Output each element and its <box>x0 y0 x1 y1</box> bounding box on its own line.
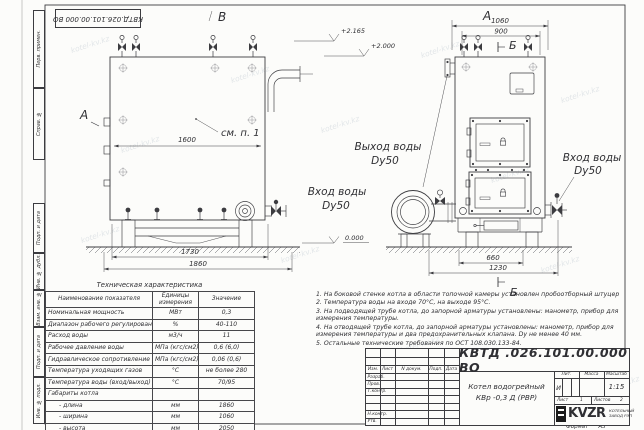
document-designation: КВТД .026.101.00.000 ВО <box>459 349 629 371</box>
elevation-0000: 0.000 <box>345 234 364 242</box>
safety-valves-top <box>118 35 257 57</box>
table-row: Рабочее давление водыМПа (кгс/см2)0,6 (6… <box>46 342 255 354</box>
outlet-label-line2: Dy50 <box>371 155 399 167</box>
param-unit: мм <box>153 412 199 424</box>
kvzr-logo-subtext: КОТЕЛЬНЫЙ ЗАВОД РЭП <box>609 408 634 418</box>
scale-value: 1:15 <box>604 383 629 391</box>
ash-door <box>466 172 531 214</box>
table-row: Температура воды (вход/выход)°С70/95 <box>46 377 255 389</box>
support-frame <box>122 220 252 247</box>
burner-flange <box>236 202 255 221</box>
param-unit: МПа (кгс/см2) <box>153 342 199 354</box>
sheet-value: 1 <box>580 398 583 403</box>
param-name: - высота <box>46 423 153 430</box>
param-value: 1860 <box>199 400 255 412</box>
margin-box-inv-podl: Инв. № подл. <box>33 377 45 424</box>
col-data: Дата <box>444 367 459 372</box>
param-value: 1060 <box>199 412 255 424</box>
param-unit: мм <box>153 400 199 412</box>
product-name: Котел водогрейный КВр -0,3 Д (РВР) <box>459 371 554 404</box>
svg-text:см. п. 1: см. п. 1 <box>221 128 260 139</box>
row-utv: Утв. <box>368 419 377 424</box>
param-value: 2050 <box>199 423 255 430</box>
row-nkontr: Н.контр. <box>368 412 388 417</box>
elevation-2165: +2.165 <box>341 27 365 35</box>
product-name-line1: Котел водогрейный <box>459 382 554 393</box>
drawing-sheet: kotel-kv.kz kotel-kv.kz kotel-kv.kz kote… <box>0 0 644 430</box>
param-name: Номинальная мощность <box>46 308 153 320</box>
row-tkontr: Т.контр. <box>368 389 387 394</box>
inlet-mid-label-line1: Вход воды <box>308 186 367 198</box>
furnace-door <box>467 118 530 167</box>
margin-box-podp-data-2: Подп. и дата <box>33 327 45 377</box>
margin-label: Взам. инв. № <box>36 291 42 326</box>
margin-box-perv-primen: Перв. примен. <box>33 10 45 88</box>
lit-value: И <box>554 384 563 392</box>
col-header: Единицы измерения <box>153 292 199 308</box>
margin-label: Подп. и дата <box>36 335 42 369</box>
row-prov: Пров. <box>368 382 381 387</box>
dim-1860: 1860 <box>189 260 207 268</box>
param-name: Диапазон рабочего регулирования <box>46 319 153 331</box>
table-row: Расход водым3/ч11 <box>46 331 255 343</box>
param-name: Температура воды (вход/выход) <box>46 377 153 389</box>
note-3: 3. На подводящей трубе котла, до запорно… <box>316 308 626 323</box>
param-value <box>199 389 255 401</box>
dim-660: 660 <box>486 254 500 262</box>
param-unit: м3/ч <box>153 331 199 343</box>
elevation-2000: +2.000 <box>371 42 395 50</box>
boiler-side-view <box>86 35 313 253</box>
duct-valve <box>435 190 445 205</box>
margin-label: Подп. и дата <box>36 211 42 245</box>
sheet-label: Лист <box>557 398 568 403</box>
title-block: КВТД .026.101.00.000 ВО Котел водогрейны… <box>365 348 630 426</box>
param-name: - длина <box>46 400 153 412</box>
sheets-value: 2 <box>620 398 623 403</box>
lit-header: Лит. <box>554 372 579 377</box>
dim-900: 900 <box>494 28 508 36</box>
drain-valves <box>125 208 227 220</box>
doc-number-top: КВТД.026.101.00.000 ВО <box>53 15 143 23</box>
outlet-label-line1: Выход воды <box>355 141 422 153</box>
note-4: 4. На отводящей трубе котла, до запорной… <box>316 324 626 339</box>
param-value: 0,3 <box>199 308 255 320</box>
table-row: - ширинамм1060 <box>46 412 255 424</box>
col-izm: Изм. <box>366 367 380 372</box>
param-name: Рабочее давление воды <box>46 342 153 354</box>
section-arrow-a: А <box>79 108 88 122</box>
param-name: Расход воды <box>46 331 153 343</box>
kvzr-logo-text: KVZR <box>568 406 606 421</box>
table-row: Температура уходящих газов°Сне более 280 <box>46 365 255 377</box>
param-value: 0,06 (0,6) <box>199 354 255 366</box>
technical-notes: 1. На боковой стенке котла в области топ… <box>316 291 626 348</box>
param-value: 11 <box>199 331 255 343</box>
tech-table: Наименование показателя Единицы измерени… <box>45 291 255 430</box>
side-outlet-valve <box>265 200 286 217</box>
param-name: Гидравлическое сопротивление котла <box>46 354 153 366</box>
param-name: Температура уходящих газов <box>46 365 153 377</box>
kvzr-sub-line2: ЗАВОД РЭП <box>609 413 634 418</box>
row-razrab: Разраб. <box>368 375 385 380</box>
right-view-dimensions: 1060 900 660 1230 <box>429 17 558 276</box>
table-row: - длинамм1860 <box>46 400 255 412</box>
param-unit: мм <box>153 423 199 430</box>
margin-box-inv-dubl: Инв. № дубл. <box>33 253 45 290</box>
dim-1600: 1600 <box>178 136 196 144</box>
col-ndokum: N докум. <box>395 367 428 372</box>
param-unit: % <box>153 319 199 331</box>
svg-text:Б: Б <box>509 39 517 52</box>
table-row: - высотамм2050 <box>46 423 255 430</box>
dim-1730: 1730 <box>181 248 199 256</box>
dim-1060: 1060 <box>491 17 509 25</box>
view-letter-v: В <box>218 10 226 24</box>
col-list: Лист <box>380 367 395 372</box>
param-unit: МВт <box>153 308 199 320</box>
col-podp: Подп. <box>428 367 444 372</box>
table-header-row: Наименование показателя Единицы измерени… <box>46 292 255 308</box>
outlet-flange <box>445 59 455 77</box>
chimney-elbow <box>268 66 313 112</box>
param-name: Габариты котла <box>46 389 153 401</box>
table-row: Номинальная мощностьМВт0,3 <box>46 308 255 320</box>
tech-table-title: Техническая характеристика <box>45 281 254 289</box>
param-value: 40-110 <box>199 319 255 331</box>
param-value: 70/95 <box>199 377 255 389</box>
margin-label: Инв. № подл. <box>36 383 42 418</box>
inlet-valve <box>545 193 567 218</box>
product-name-line2: КВр -0,3 Д (РВР) <box>459 393 554 404</box>
param-unit <box>153 389 199 401</box>
margin-box-podp-data-1: Подп. и дата <box>33 203 45 253</box>
param-value: 0,6 (6,0) <box>199 342 255 354</box>
top-hatch <box>510 73 534 94</box>
kvzr-logo-mark <box>556 406 566 422</box>
param-unit: МПа (кгс/см2) <box>153 354 199 366</box>
margin-label: Инв. № дубл. <box>36 254 42 289</box>
col-header: Значение <box>199 292 255 308</box>
callout-see-p1: см. п. 1 <box>195 118 260 139</box>
note-2: 2. Температура воды на входе 70°С, на вы… <box>316 299 626 306</box>
margin-box-sprav: Справ. № <box>33 88 45 160</box>
table-row: Габариты котла <box>46 389 255 401</box>
massa-header: Масса <box>579 372 604 377</box>
table-row: Диапазон рабочего регулирования%40-110 <box>46 319 255 331</box>
doc-number-top-box: КВТД.026.101.00.000 ВО <box>55 9 141 28</box>
inlet-mid-label-line2: Dy50 <box>322 200 350 212</box>
param-unit: °С <box>153 365 199 377</box>
section-b-top: Б <box>498 39 517 52</box>
note-1: 1. На боковой стенке котла в области топ… <box>316 291 626 298</box>
fan-base <box>398 234 431 247</box>
ash-drawer <box>474 221 518 230</box>
margin-label: Перв. примен. <box>36 30 42 68</box>
dim-1230: 1230 <box>489 264 507 272</box>
param-unit: °С <box>153 377 199 389</box>
sheets-label: Листов <box>594 398 610 403</box>
side-fittings <box>104 118 110 186</box>
param-name: - ширина <box>46 412 153 424</box>
margin-box-vzam-inv: Взам. инв. № <box>33 290 45 327</box>
view-letter-a: А <box>482 9 491 23</box>
ground-line-right <box>386 247 572 253</box>
col-header: Наименование показателя <box>46 292 153 308</box>
front-top-valves <box>460 35 532 57</box>
blower-fan <box>392 76 457 247</box>
inlet-right-label-line1: Вход воды <box>563 152 622 164</box>
inlet-right-label-line2: Dy50 <box>574 165 602 177</box>
masshtab-header: Масштаб <box>604 372 629 377</box>
table-row: Гидравлическое сопротивление котлаМПа (к… <box>46 354 255 366</box>
param-value: не более 280 <box>199 365 255 377</box>
margin-label: Справ. № <box>36 111 42 136</box>
